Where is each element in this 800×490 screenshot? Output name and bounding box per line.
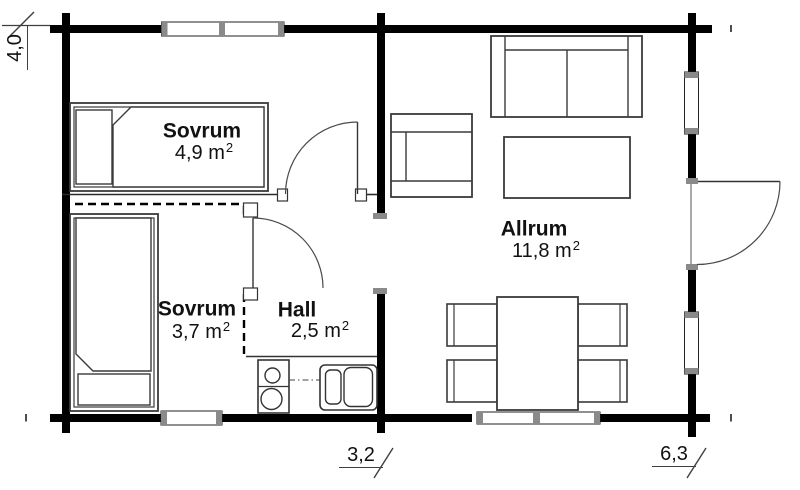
blanket <box>76 218 151 371</box>
bed-top <box>70 103 268 191</box>
right-wall-seg4 <box>688 374 696 437</box>
top-wall-seg2 <box>284 25 712 33</box>
window-living-upper <box>685 72 699 134</box>
window-living-lower <box>685 312 699 374</box>
sink <box>320 365 377 410</box>
door-swing <box>286 122 358 194</box>
basin-right <box>344 368 373 407</box>
double-window-top <box>162 22 285 36</box>
bottom-wall-seg2 <box>221 414 472 422</box>
dimension-width-hall: 3,2 <box>339 444 383 468</box>
sofa <box>491 36 642 117</box>
bottom-wall-seg3 <box>600 414 710 422</box>
coffee-table <box>504 137 630 198</box>
room-label-hall: Hall <box>278 300 317 321</box>
dining-table <box>497 297 578 410</box>
basin-left <box>326 370 342 404</box>
entry-door <box>686 178 780 270</box>
dimension-width-living: 6,3 <box>652 443 696 467</box>
bottom-wall-seg1 <box>50 414 162 422</box>
room-label-bedroom-top: Sovrum <box>163 121 241 142</box>
pillow <box>78 374 150 405</box>
room-area-bedroom-bottom: 3,7 m2 <box>172 322 230 342</box>
burner-small <box>265 368 280 383</box>
window-bedroom-bottom <box>161 411 222 425</box>
right-wall-seg1 <box>688 13 696 72</box>
door-jambs <box>244 189 367 300</box>
floor-plan-drawing <box>0 0 800 490</box>
door-swing <box>253 218 323 288</box>
dimension-height-left: 4,0 <box>4 26 28 70</box>
door-bedroom-bottom <box>253 218 323 288</box>
room-area-bedroom-top: 4,9 m2 <box>175 143 233 163</box>
floor-plan: Sovrum 4,9 m2 Sovrum 3,7 m2 Hall 2,5 m2 … <box>0 0 800 490</box>
room-area-living: 11,8 m2 <box>512 241 580 261</box>
left-wall <box>62 13 70 433</box>
door-bedroom-top <box>286 122 358 194</box>
room-label-living: Allrum <box>501 219 568 240</box>
right-wall-seg2 <box>688 134 696 178</box>
bed-bottom <box>70 214 158 411</box>
wall-end-cap-top <box>373 213 387 219</box>
right-wall-seg3 <box>688 270 696 312</box>
burner-large <box>261 389 282 410</box>
wall-end-cap-bottom <box>373 288 387 294</box>
armchair <box>391 114 472 197</box>
double-window-living <box>477 412 600 424</box>
stove <box>258 360 289 413</box>
pillow <box>76 110 112 184</box>
room-area-hall: 2,5 m2 <box>291 321 349 341</box>
entry-door-swing <box>697 182 780 265</box>
top-wall-seg1 <box>50 25 162 33</box>
room-label-bedroom-bottom: Sovrum <box>158 299 236 320</box>
